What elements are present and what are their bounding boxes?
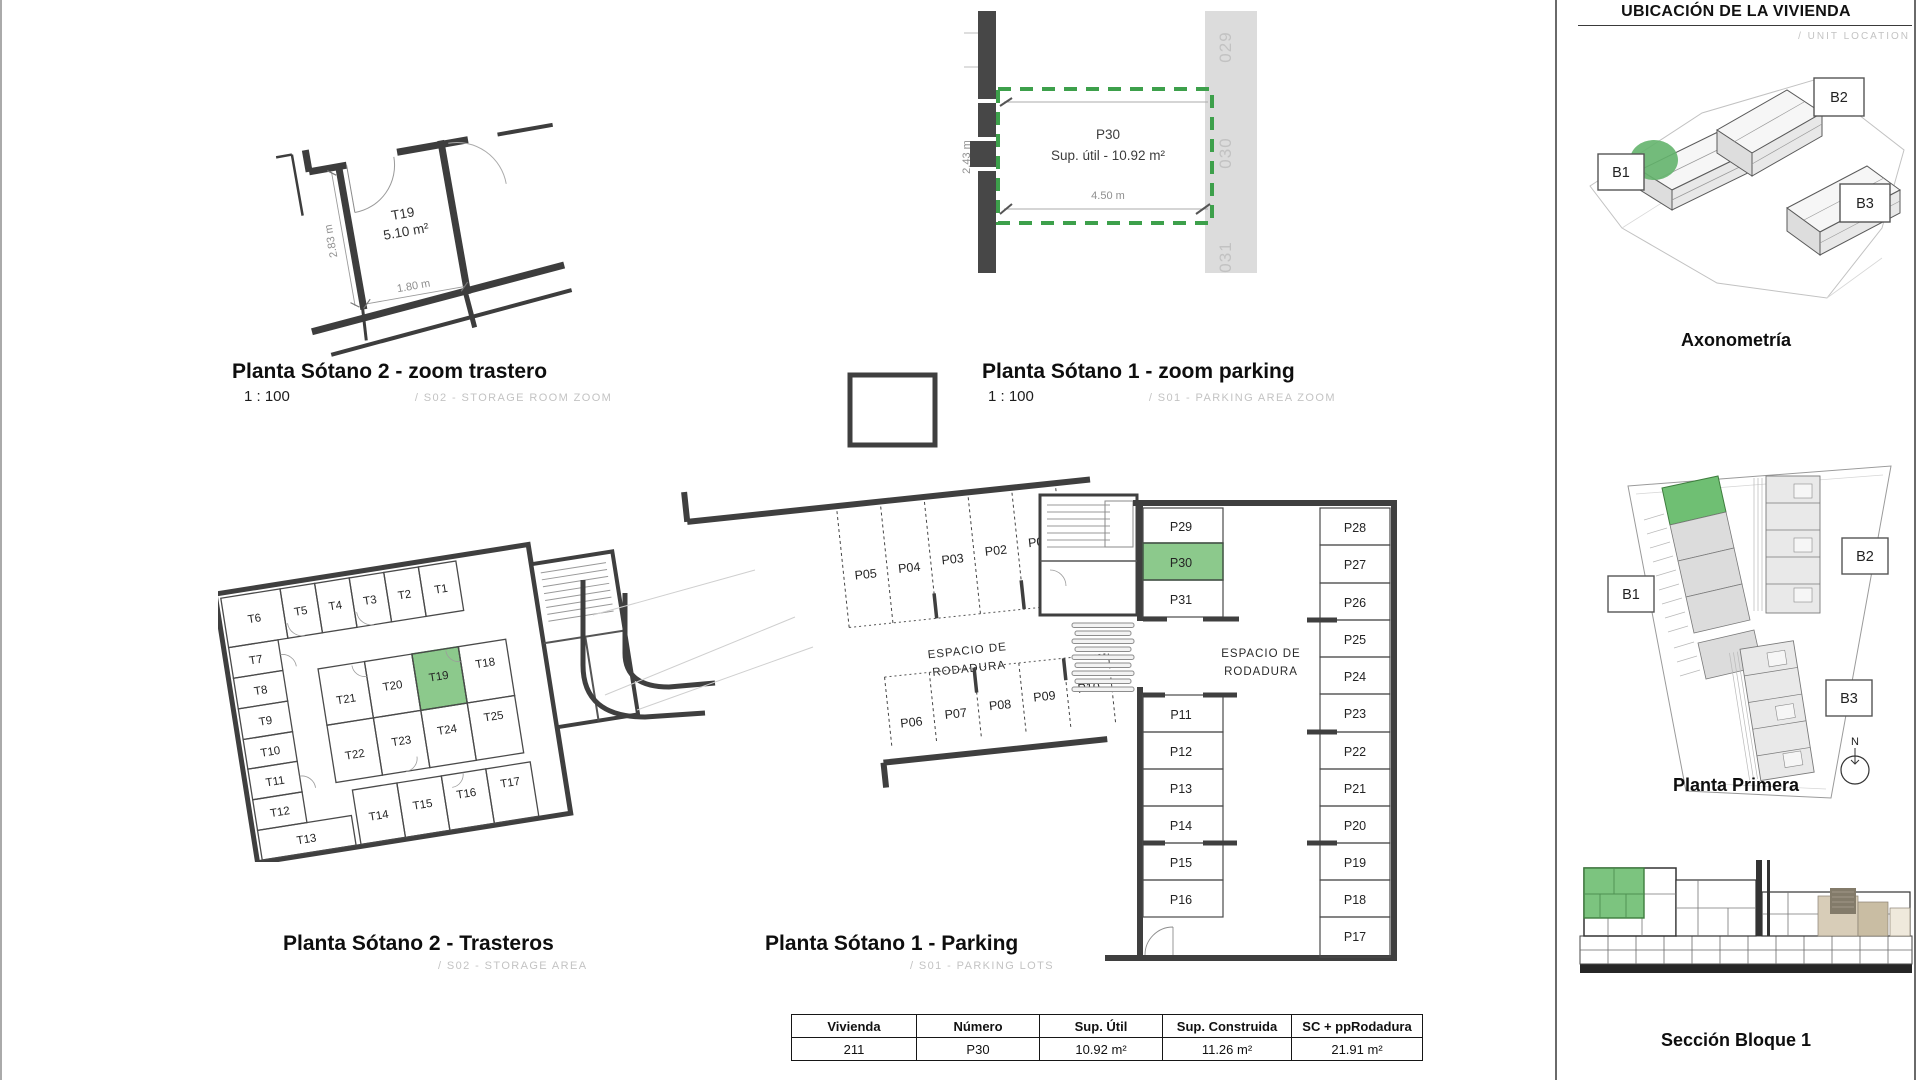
parking-zoom-drawing: 029 030 031 P30 Sup. útil - 10.92 m² 4.5… bbox=[962, 3, 1262, 283]
parking-stall-label: P24 bbox=[1344, 670, 1366, 684]
table-header-row: Vivienda Número Sup. Útil Sup. Construid… bbox=[792, 1015, 1423, 1038]
table-value-row: 211 P30 10.92 m² 11.26 m² 21.91 m² bbox=[792, 1038, 1423, 1061]
parking-stall-label: P21 bbox=[1344, 782, 1366, 796]
parking-stall-label: P06 bbox=[900, 714, 924, 730]
neighbor-stall-label: 030 bbox=[1216, 137, 1235, 168]
storage-cell-label: T7 bbox=[248, 654, 263, 668]
page-left-edge bbox=[0, 0, 2, 1080]
storage-cell-label: T1 bbox=[434, 583, 449, 597]
parking-stall-label: P14 bbox=[1170, 819, 1192, 833]
sidebar-title: UBICACIÓN DE LA VIVIENDA bbox=[1560, 3, 1912, 21]
ramp-inner-wall bbox=[625, 593, 715, 687]
axonometry-caption: Axonometría bbox=[1560, 330, 1912, 351]
parking-stall-label: P26 bbox=[1344, 596, 1366, 610]
block-label-b3: B3 bbox=[1856, 196, 1874, 212]
dim-width-label: 4.50 m bbox=[1091, 190, 1125, 202]
header-numero: Número bbox=[917, 1015, 1040, 1038]
seccion-caption: Sección Bloque 1 bbox=[1560, 1030, 1912, 1051]
roadway-label: RODADURA bbox=[1224, 666, 1298, 678]
plan-sheet: 2.83 m 1.80 m T19 5.10 m² Planta Sótano … bbox=[0, 0, 1920, 1080]
sidebar-divider bbox=[1555, 0, 1557, 1080]
parking-stall-label: P05 bbox=[854, 566, 878, 582]
roadway-label: RODADURA bbox=[932, 659, 1007, 679]
roadway-label: ESPACIO DE bbox=[927, 641, 1007, 661]
storage-cell-label: T2 bbox=[397, 588, 412, 602]
storage-zoom-scale: 1 : 100 bbox=[244, 388, 290, 405]
parking-titleblock: Planta Sótano 1 - Parking / S01 - PARKIN… bbox=[765, 932, 1145, 972]
parking-stall-label: P08 bbox=[988, 697, 1012, 713]
parking-stall-label: P25 bbox=[1344, 633, 1366, 647]
header-sc-pprodadura: SC + ppRodadura bbox=[1292, 1015, 1423, 1038]
value-sup-construida: 11.26 m² bbox=[1163, 1038, 1292, 1061]
neighbor-stall-label: 029 bbox=[1216, 31, 1235, 62]
storage-cell-label: T3 bbox=[362, 594, 377, 608]
storage-cell-label: T8 bbox=[253, 684, 268, 698]
parking-stall-label: P22 bbox=[1344, 745, 1366, 759]
header-sup-util: Sup. Útil bbox=[1040, 1015, 1163, 1038]
unit-summary-table: Vivienda Número Sup. Útil Sup. Construid… bbox=[791, 1014, 1423, 1061]
unit-area-label: 5.10 m² bbox=[382, 220, 430, 243]
planta-primera-caption: Planta Primera bbox=[1560, 775, 1912, 796]
parking-stall-label: P12 bbox=[1170, 745, 1192, 759]
north-label: N bbox=[1851, 736, 1859, 748]
parking-stall-label: P11 bbox=[1170, 708, 1191, 722]
sidebar-title-rule bbox=[1578, 25, 1912, 26]
value-sup-util: 10.92 m² bbox=[1040, 1038, 1163, 1061]
parking-stall-label: P19 bbox=[1344, 856, 1366, 870]
block-label-b3: B3 bbox=[1840, 691, 1858, 707]
dim-width-label: 1.80 m bbox=[396, 278, 431, 296]
header-vivienda: Vivienda bbox=[792, 1015, 917, 1038]
storage-room-zoom-drawing: 2.83 m 1.80 m T19 5.10 m² bbox=[250, 106, 580, 361]
unit-id-label: T19 bbox=[390, 204, 416, 223]
header-sup-construida: Sup. Construida bbox=[1163, 1015, 1292, 1038]
parking-stall-label: P28 bbox=[1344, 521, 1366, 535]
value-sc-pprodadura: 21.91 m² bbox=[1292, 1038, 1423, 1061]
neighbor-stall-label: 031 bbox=[1216, 241, 1235, 272]
stall-area-label: Sup. útil - 10.92 m² bbox=[1051, 148, 1166, 163]
parking-stall-label: P31 bbox=[1170, 593, 1192, 607]
stairwell bbox=[1040, 495, 1137, 615]
ramp-stripes bbox=[1072, 623, 1134, 692]
block-label-b1: B1 bbox=[1612, 165, 1630, 181]
parking-title: Planta Sótano 1 - Parking bbox=[765, 932, 1145, 956]
parking-stall-label: P03 bbox=[941, 551, 965, 567]
storage-cell-label: T5 bbox=[293, 605, 308, 619]
stall-id-label: P30 bbox=[1096, 127, 1120, 142]
block-label-b1: B1 bbox=[1622, 587, 1640, 603]
parking-stall-label: P07 bbox=[944, 706, 968, 722]
parking-stall-label: P23 bbox=[1344, 707, 1366, 721]
storage-cell-label: T9 bbox=[258, 715, 273, 729]
parking-code: / S01 - PARKING LOTS bbox=[910, 960, 1054, 972]
dim-height-label: 2.83 m bbox=[323, 223, 341, 258]
parking-stall-label: P18 bbox=[1344, 893, 1366, 907]
planta-primera-drawing: B1 B2 B3 N bbox=[1598, 448, 1904, 803]
value-vivienda: 211 bbox=[792, 1038, 917, 1061]
parking-stall-label: P04 bbox=[897, 560, 921, 576]
parking-stall-label: P17 bbox=[1344, 930, 1366, 944]
sidebar-subtitle: / UNIT LOCATION bbox=[1560, 31, 1910, 42]
roof-protrusion bbox=[850, 375, 935, 445]
parking-stall-label: P09 bbox=[1033, 688, 1057, 704]
parking-stall-label: P20 bbox=[1344, 819, 1366, 833]
seccion-drawing bbox=[1578, 852, 1918, 984]
parking-stall-label: P27 bbox=[1344, 558, 1366, 572]
parking-stall-label: P15 bbox=[1170, 856, 1192, 870]
unit-highlight-section bbox=[1584, 868, 1644, 918]
storage-cell-label: T4 bbox=[328, 599, 344, 613]
parking-stall-label: P30 bbox=[1170, 556, 1192, 570]
parking-stall-label: P02 bbox=[984, 543, 1008, 559]
parking-stall-label: P13 bbox=[1170, 782, 1192, 796]
parking-stall-label: P29 bbox=[1170, 520, 1192, 534]
value-numero: P30 bbox=[917, 1038, 1040, 1061]
roadway-label: ESPACIO DE bbox=[1221, 648, 1300, 660]
dim-height-label: 2.43 m bbox=[962, 140, 973, 174]
parking-floor-plan: P05 P04 P03 P02 P01 ESPACIO DE RODADURA … bbox=[545, 365, 1420, 1000]
parking-stall-label: P16 bbox=[1170, 893, 1192, 907]
block-label-b2: B2 bbox=[1856, 549, 1874, 565]
block-label-b2: B2 bbox=[1830, 90, 1848, 106]
storage-cell-label: T6 bbox=[247, 612, 262, 626]
axonometry-drawing: B1 B2 B3 bbox=[1582, 58, 1912, 326]
